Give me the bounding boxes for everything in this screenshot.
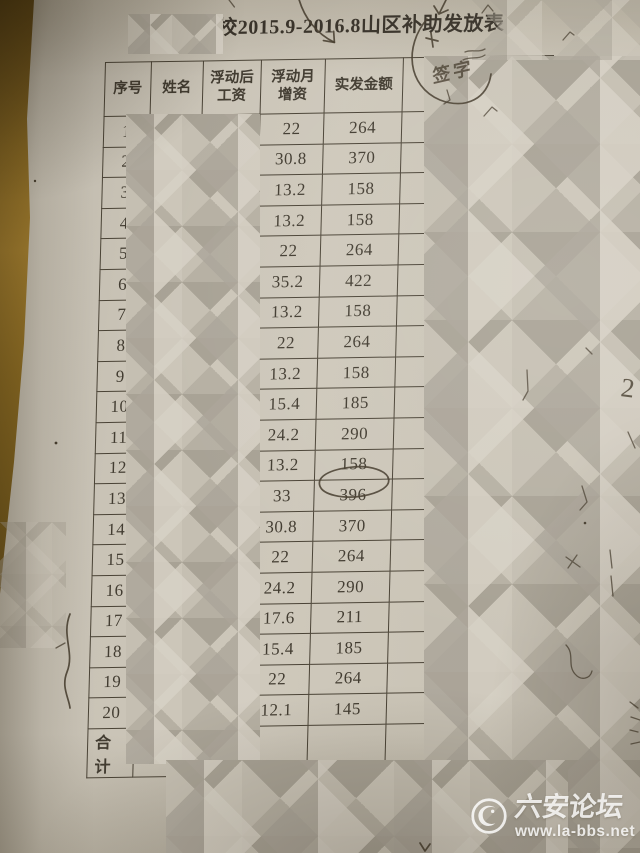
cell-actual-amount: 158 — [322, 173, 401, 205]
cell-actual-amount: 290 — [311, 571, 390, 603]
cell-monthly-increase: 22 — [254, 327, 319, 359]
cell-monthly-increase: 24.2 — [251, 419, 316, 451]
cell-actual-amount: 370 — [322, 142, 401, 174]
watermark-site-name: 六安论坛 — [513, 794, 637, 821]
watermark-site-url: www.la-bbs.net — [515, 823, 635, 840]
censor-top-right — [472, 0, 640, 60]
cell-monthly-increase: 13.2 — [250, 450, 315, 482]
watermark-logo-icon — [468, 794, 510, 836]
cell-actual-amount: 422 — [319, 265, 398, 297]
cell-actual-amount: 264 — [323, 112, 402, 144]
cell-monthly-increase: 13.2 — [258, 174, 323, 206]
cell-monthly-increase: 35.2 — [255, 266, 320, 298]
cell-actual-amount: 370 — [313, 510, 392, 542]
cell-actual-amount: 145 — [308, 693, 387, 725]
censor-names-wages-columns — [126, 114, 260, 764]
cell-actual-amount: 158 — [317, 357, 396, 389]
header-wage-after: 浮动后 工资 — [202, 60, 261, 115]
watermark: 六安论坛 www.la-bbs.net — [468, 794, 635, 840]
document-title: 学校2015.9-2016.8山区补助发放表 — [197, 7, 498, 41]
cell-actual-amount: 211 — [310, 602, 389, 634]
header-index: 序号 — [104, 62, 151, 117]
cell-actual-amount: 158 — [318, 296, 397, 328]
censor-left-margin — [0, 522, 66, 648]
cell-actual-amount: 185 — [310, 632, 389, 664]
cell-actual-amount: 185 — [316, 387, 395, 419]
cell-actual-amount: 264 — [309, 663, 388, 695]
censor-school-name — [128, 14, 223, 54]
cell-monthly-increase: 22 — [259, 113, 324, 145]
cell-monthly-increase: 22 — [256, 236, 321, 268]
cell-monthly-increase: 13.2 — [253, 358, 318, 390]
censor-signature-column — [424, 56, 640, 853]
cell-monthly-increase: 13.2 — [257, 205, 322, 237]
cell-actual-amount: 290 — [315, 418, 394, 450]
photo-of-document: 学校2015.9-2016.8山区补助发放表 序号 姓名 浮动后 工资 浮动月 … — [0, 0, 640, 853]
cell-monthly-increase: 13.2 — [254, 297, 319, 329]
cell-actual-amount: 264 — [312, 540, 391, 572]
cell-actual-amount: 158 — [314, 449, 393, 481]
header-monthly-increase: 浮动月 增资 — [260, 59, 325, 114]
header-name: 姓名 — [150, 61, 203, 116]
cell-actual-amount: 264 — [318, 326, 397, 358]
cell-monthly-increase: 30.8 — [258, 144, 323, 176]
cell-actual-amount: 396 — [314, 479, 393, 511]
cell-actual-amount: 158 — [321, 204, 400, 236]
header-actual-amount: 实发金额 — [324, 58, 403, 113]
cell-actual-amount: 264 — [320, 234, 399, 266]
cell-monthly-increase: 15.4 — [252, 389, 317, 421]
